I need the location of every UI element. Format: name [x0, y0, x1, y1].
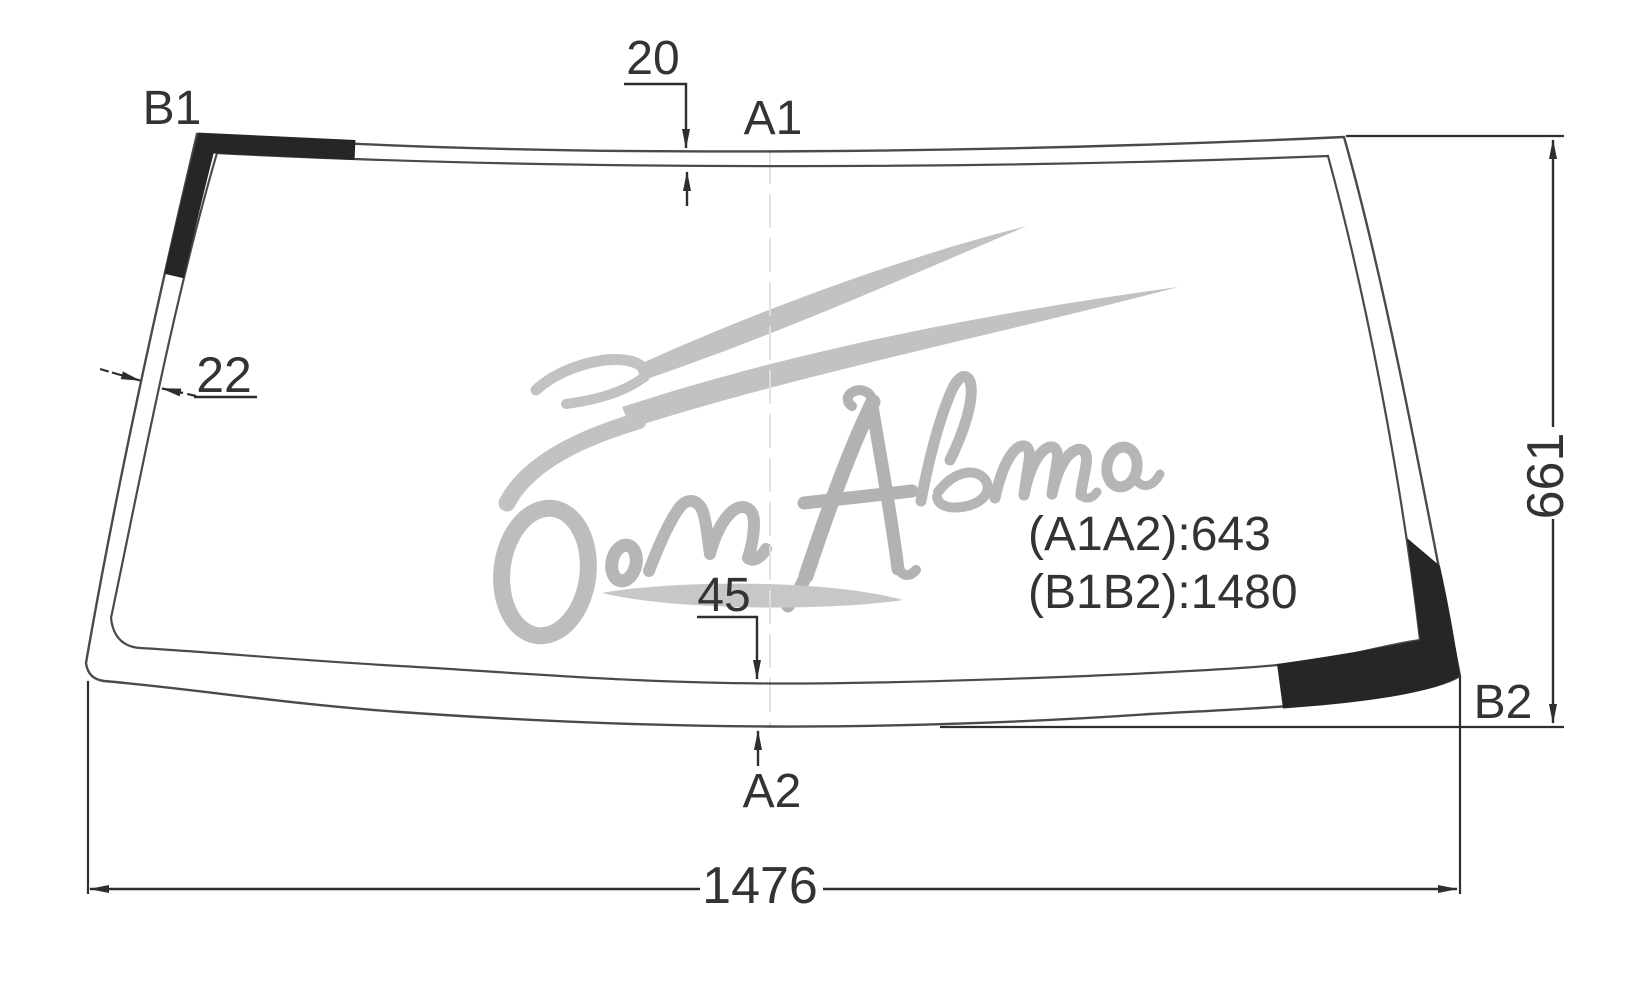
svg-text:22: 22: [196, 347, 252, 403]
svg-text:661: 661: [1517, 433, 1575, 520]
svg-text:20: 20: [626, 32, 679, 85]
svg-text:1476: 1476: [702, 857, 818, 915]
svg-text:A1: A1: [744, 92, 803, 145]
svg-text:B1: B1: [143, 82, 202, 135]
svg-text:A2: A2: [743, 765, 802, 818]
svg-text:(B1B2):1480: (B1B2):1480: [1028, 566, 1298, 619]
svg-text:45: 45: [697, 569, 750, 622]
svg-text:B2: B2: [1474, 676, 1533, 729]
svg-text:(A1A2):643: (A1A2):643: [1028, 508, 1271, 561]
